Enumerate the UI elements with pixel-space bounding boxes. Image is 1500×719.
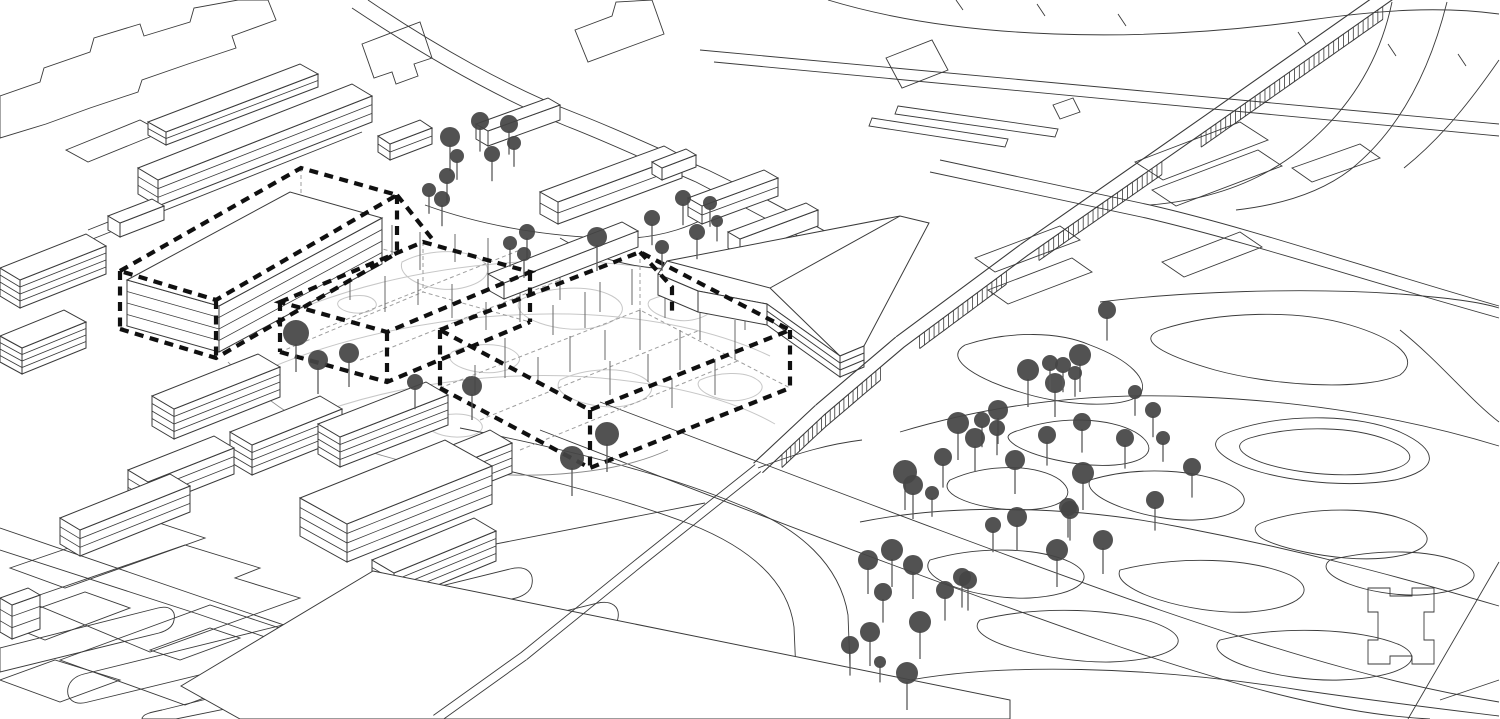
axonometric-site-plan bbox=[0, 0, 1500, 719]
site-plan-figure bbox=[0, 0, 1500, 719]
building-layer bbox=[0, 64, 1010, 719]
viaduct-layer bbox=[433, 0, 1395, 719]
